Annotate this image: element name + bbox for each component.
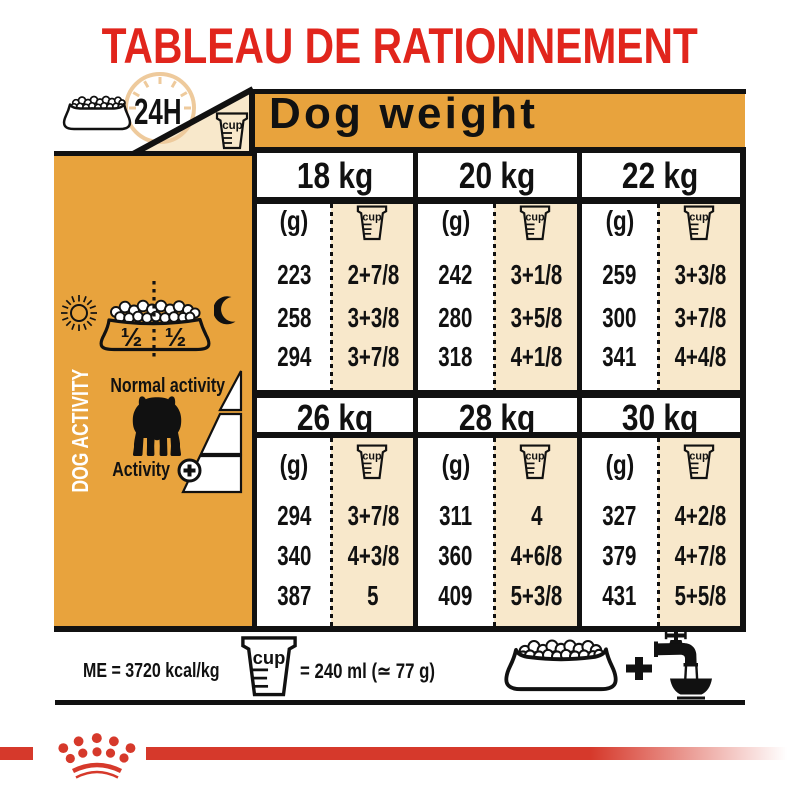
svg-text:½: ½ xyxy=(121,322,143,352)
svg-text:½: ½ xyxy=(165,322,187,352)
svg-text:cup: cup xyxy=(222,120,242,132)
svg-text:cup: cup xyxy=(525,212,545,224)
svg-text:cup: cup xyxy=(362,212,382,224)
svg-text:cup: cup xyxy=(689,212,709,224)
svg-text:cup: cup xyxy=(362,451,382,463)
svg-text:cup: cup xyxy=(689,451,709,463)
svg-text:cup: cup xyxy=(525,451,545,463)
svg-text:cup: cup xyxy=(253,647,286,668)
